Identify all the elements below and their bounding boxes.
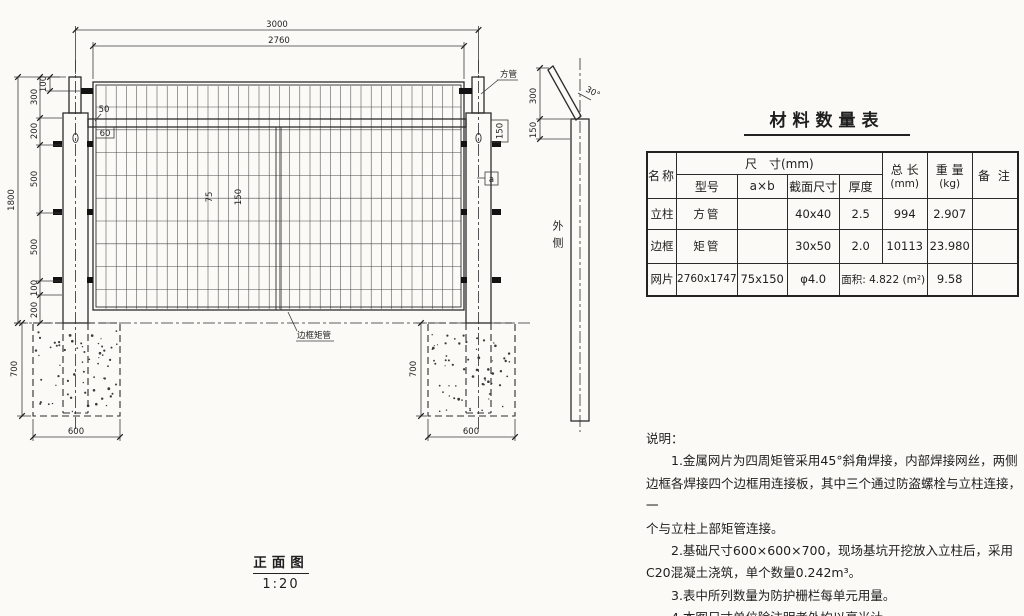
cell-axb <box>737 198 787 229</box>
dim-rail-gap-bottom: 60 <box>100 129 111 139</box>
cell-section: φ4.0 <box>787 263 839 296</box>
dim-mesh-pitch-v: 150 <box>234 189 244 205</box>
col-header-thickness: 厚度 <box>839 174 882 198</box>
cell-remark <box>972 198 1018 229</box>
notes-block: 说明： 1.金属网片为四周矩管采用45°斜角焊接，内部焊接网丝，两侧 边框各焊接… <box>646 428 1024 616</box>
right-foundation-concrete <box>432 334 511 412</box>
cell-section: 30x50 <box>787 229 839 263</box>
cell-model: 2760x1747 <box>677 263 738 296</box>
dim-overall-height: 1800 <box>7 189 17 211</box>
cell-weight: 23.980 <box>927 229 972 263</box>
dim-top-offset: 100 <box>39 76 49 92</box>
cell-name: 立柱 <box>647 198 677 229</box>
cell-remark <box>972 263 1018 296</box>
col-header-name: 名称 <box>647 152 677 198</box>
notes-heading: 说明： <box>646 428 1024 450</box>
dimension-lines <box>14 26 570 441</box>
dim-foundation-depth-left: 700 <box>10 361 20 377</box>
view-scale: 1:20 <box>236 577 326 592</box>
cell-model: 方管 <box>677 198 738 229</box>
dim-foundation-width-left: 600 <box>68 427 84 437</box>
cell-thickness: 2.5 <box>839 198 882 229</box>
cell-section: 40x40 <box>787 198 839 229</box>
dim-chain-500a: 500 <box>30 171 40 187</box>
cell-thickness: 2.0 <box>839 229 882 263</box>
col-header-remark: 备 注 <box>972 152 1018 198</box>
cell-axb <box>737 229 787 263</box>
right-post-top-tube <box>472 77 484 113</box>
outer-side-label: 外侧 <box>549 220 565 254</box>
front-view-drawing: 3000 2760 1800 300 200 500 500 100 200 1… <box>0 0 640 616</box>
cell-axb: 75x150 <box>737 263 787 296</box>
col-header-axb: a×b <box>737 174 787 198</box>
dim-rail-gap-top: 50 <box>99 105 110 115</box>
col-header-total-length: 总 长 (mm) <box>882 152 927 198</box>
edge-frame-label: 边框矩管 <box>297 330 331 341</box>
center-stiffener <box>276 127 281 310</box>
dim-panel-width: 2760 <box>268 36 290 46</box>
note-line: 边框各焊接四个边框用连接板，其中三个通过防盗螺栓与立柱连接，一 <box>646 473 1024 518</box>
left-foundation <box>33 323 120 416</box>
dim-chain-500b: 500 <box>30 239 40 255</box>
side-view-arm <box>548 66 581 120</box>
weight-line1: 重 量 <box>928 161 972 178</box>
col-header-model: 型号 <box>677 174 738 198</box>
dim-foundation-depth-right: 700 <box>409 361 419 377</box>
left-foundation-concrete <box>35 330 118 412</box>
cell-weight: 2.907 <box>927 198 972 229</box>
left-top-link <box>81 88 93 94</box>
dim-arm-height: 300 <box>529 88 539 104</box>
square-tube-label: 方管 <box>500 69 517 80</box>
col-header-size-group: 尺 寸(mm) <box>677 152 883 174</box>
note-line: 个与立柱上部矩管连接。 <box>646 518 1024 540</box>
cell-total: 994 <box>882 198 927 229</box>
table-row-post: 立柱 方管 40x40 2.5 994 2.907 <box>647 198 1018 229</box>
top-rail <box>88 119 466 127</box>
right-foundation <box>428 323 515 416</box>
cell-name: 边框 <box>647 229 677 263</box>
dim-arm-angle: 30° <box>584 85 602 101</box>
detail-a-mark: a <box>489 175 494 185</box>
col-header-section: 截面尺寸 <box>787 174 839 198</box>
cell-weight: 9.58 <box>927 263 972 296</box>
dim-chain-200b: 200 <box>30 302 40 318</box>
col-header-weight: 重 量 (kg) <box>927 152 972 198</box>
cell-area: 面积: 4.822 (m²) <box>839 263 927 296</box>
note-line: 3.表中所列数量为防护栅栏每单元用量。 <box>646 585 1024 607</box>
table-row-frame: 边框 矩管 30x50 2.0 10113 23.980 <box>647 229 1018 263</box>
cell-model: 矩管 <box>677 229 738 263</box>
cell-name: 网片 <box>647 263 677 296</box>
dim-top-inset-side: 150 <box>529 122 539 138</box>
dim-post-top-inset: 150 <box>496 123 506 139</box>
table-row-mesh: 网片 2760x1747 75x150 φ4.0 面积: 4.822 (m²) … <box>647 263 1018 296</box>
panel-frame-inner <box>96 85 461 307</box>
view-title-block: 正面图 1:20 <box>236 551 326 592</box>
cell-remark <box>972 229 1018 263</box>
cell-total: 10113 <box>882 229 927 263</box>
panel-frame-outer <box>93 82 464 310</box>
dim-overall-width: 3000 <box>266 20 288 30</box>
material-table-title: 材料数量表 <box>744 106 910 136</box>
right-top-link <box>459 88 472 94</box>
dim-mesh-pitch-h: 75 <box>205 192 215 203</box>
note-line: 1.金属网片为四周矩管采用45°斜角焊接，内部焊接网丝，两侧 <box>646 450 1024 472</box>
note-line: C20混凝土浇筑，单个数量0.242m³。 <box>646 562 1024 584</box>
material-table: 名称 尺 寸(mm) 总 长 (mm) 重 量 (kg) 备 注 型号 a×b … <box>646 151 1019 297</box>
note-line: 4.本图尺寸单位除注明者外均以毫米计。 <box>646 607 1024 616</box>
dim-chain-200: 200 <box>30 123 40 139</box>
total-length-line1: 总 长 <box>883 161 927 178</box>
dim-chain-100: 100 <box>30 280 40 296</box>
total-length-line2: (mm) <box>883 178 927 190</box>
view-name: 正面图 <box>253 551 309 574</box>
left-post-top-tube <box>69 77 81 113</box>
bolt-clips <box>53 141 501 283</box>
note-line: 2.基础尺寸600×600×700，现场基坑开挖放入立柱后，采用 <box>646 540 1024 562</box>
drawing-sheet: 3000 2760 1800 300 200 500 500 100 200 1… <box>0 0 1024 616</box>
dim-foundation-width-right: 600 <box>463 427 479 437</box>
weight-line2: (kg) <box>928 178 972 190</box>
